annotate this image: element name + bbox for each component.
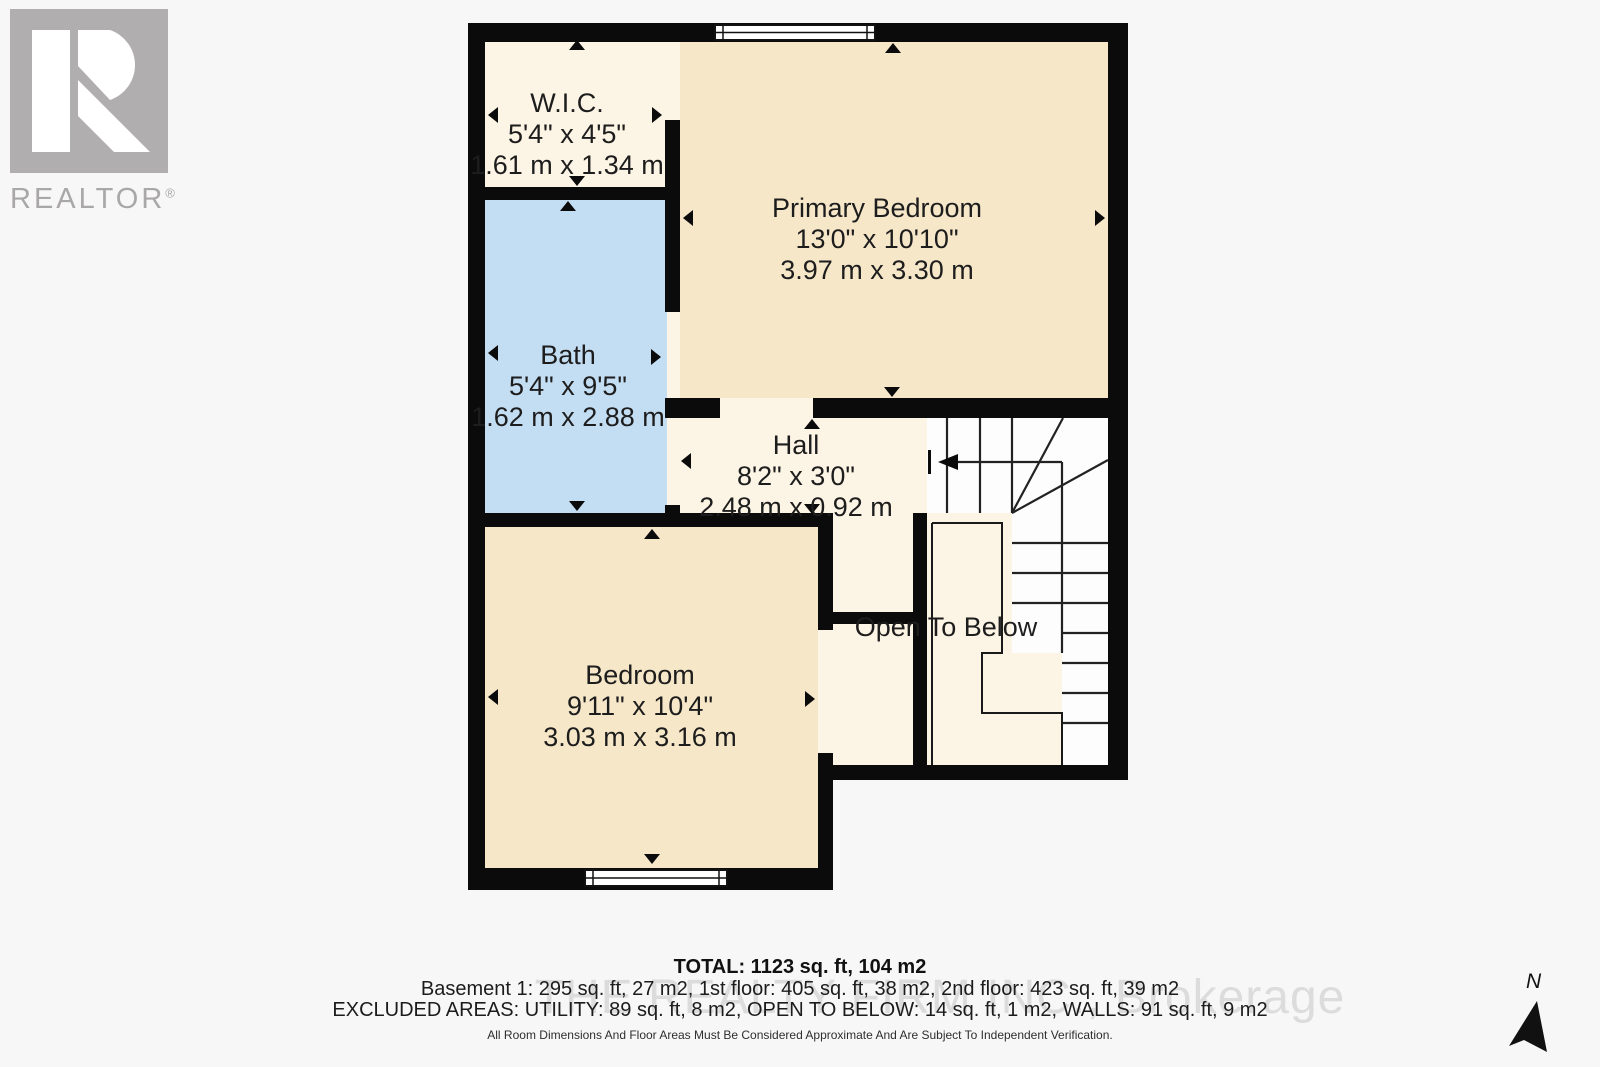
room-name: W.I.C. [470,88,664,119]
room-dims-imperial: 5'4" x 4'5" [470,119,664,150]
room-label-hall: Hall 8'2" x 3'0" 2.48 m x 0.92 m [699,430,893,523]
excluded-areas-text: EXCLUDED AREAS: UTILITY: 89 sq. ft, 8 m2… [0,999,1600,1022]
realtor-wordmark: REALTOR [10,183,165,215]
total-area-text: TOTAL: 1123 sq. ft, 104 m2 [0,956,1600,979]
room-dims-metric: 1.61 m x 1.34 m [470,150,664,181]
open-to-below-label: Open To Below [855,612,1038,643]
room-label-bedroom: Bedroom 9'11" x 10'4" 3.03 m x 3.16 m [543,660,737,753]
realtor-logo-text: REALTOR® [10,183,178,216]
room-dims-imperial: 9'11" x 10'4" [543,691,737,722]
room-name: Bedroom [543,660,737,691]
room-label-primary-bedroom: Primary Bedroom 13'0" x 10'10" 3.97 m x … [772,193,982,286]
room-dims-metric: 2.48 m x 0.92 m [699,492,893,523]
realtor-logo [10,9,168,178]
floor-plan-page: { "branding": { "logo_text": "REALTOR", … [0,0,1600,1067]
realtor-logo-mark [10,9,168,173]
room-dims-imperial: 5'4" x 9'5" [471,371,665,402]
floor-plan-svg [0,0,1600,1067]
disclaimer-text: All Room Dimensions And Floor Areas Must… [0,1028,1600,1042]
room-dims-imperial: 13'0" x 10'10" [772,224,982,255]
room-name: Primary Bedroom [772,193,982,224]
window-bottom [585,870,727,886]
room-dims-metric: 3.97 m x 3.30 m [772,255,982,286]
room-name: Hall [699,430,893,461]
room-label-bath: Bath 5'4" x 9'5" 1.62 m x 2.88 m [471,340,665,433]
floor-areas-text: Basement 1: 295 sq. ft, 27 m2, 1st floor… [0,978,1600,1001]
registered-mark: ® [165,185,178,200]
room-dims-imperial: 8'2" x 3'0" [699,461,893,492]
room-dims-metric: 3.03 m x 3.16 m [543,722,737,753]
room-dims-metric: 1.62 m x 2.88 m [471,402,665,433]
room-label-wic: W.I.C. 5'4" x 4'5" 1.61 m x 1.34 m [470,88,664,181]
room-name: Bath [471,340,665,371]
window-top [715,25,875,40]
